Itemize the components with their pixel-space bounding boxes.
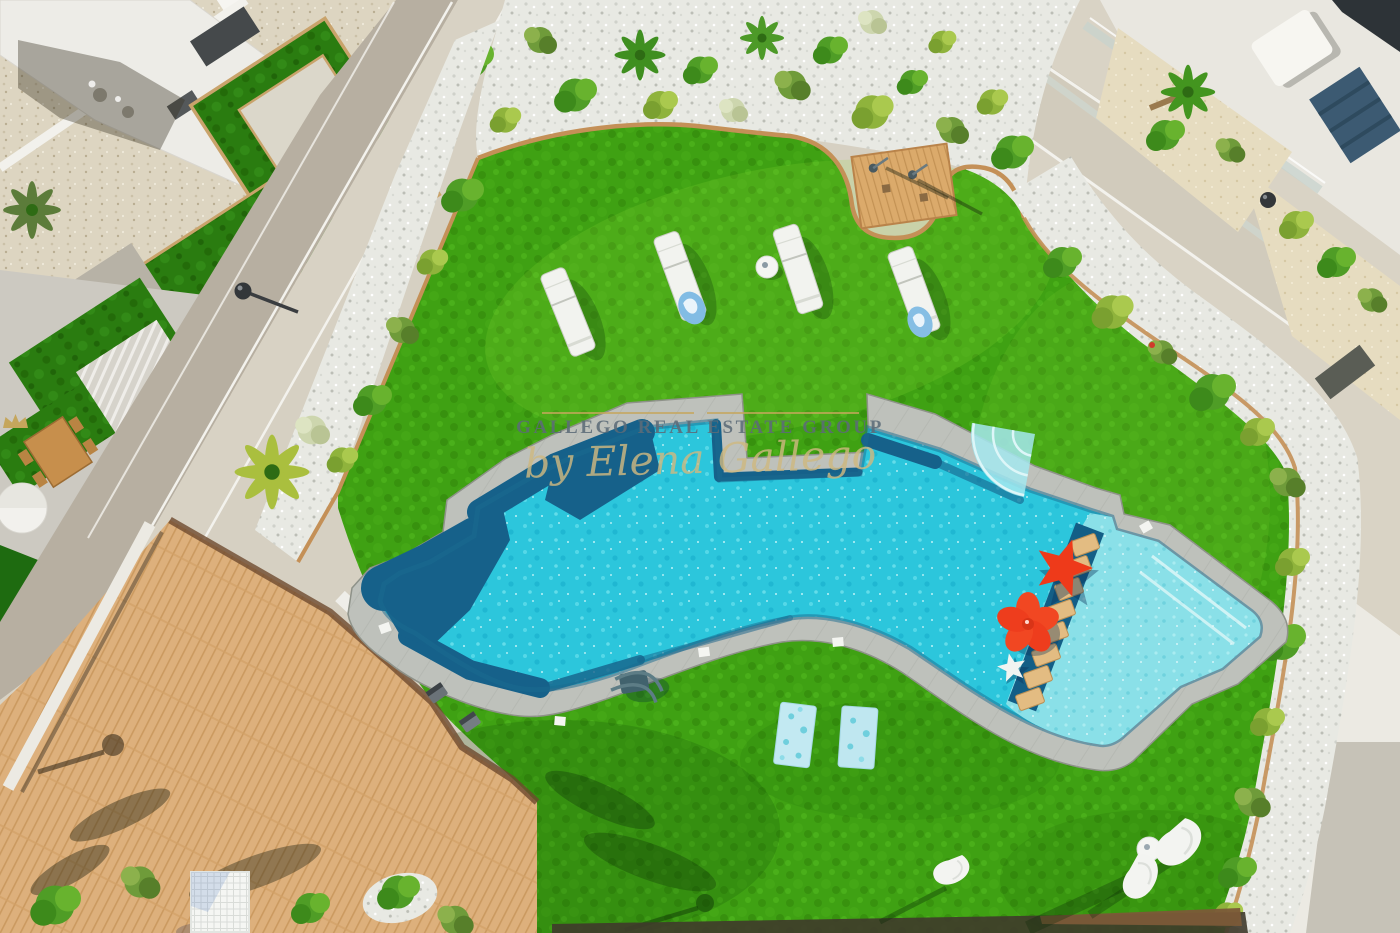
- yellow-palm: [235, 435, 310, 510]
- scene-canvas: [0, 0, 1400, 933]
- lamp-shadow: [102, 734, 124, 756]
- palm-tree: [1161, 65, 1215, 119]
- shower-deck: [851, 144, 956, 229]
- beach-towel: [838, 706, 878, 769]
- parasol: [0, 483, 47, 533]
- lamp-head: [1260, 192, 1276, 208]
- palm-tree: [615, 30, 666, 81]
- aerial-photo: GALLEGO REAL ESTATE GROUP by Elena Galle…: [0, 0, 1400, 933]
- lamp-shadow: [696, 894, 714, 912]
- beach-towel: [773, 702, 816, 768]
- palm-tree: [3, 181, 61, 239]
- lamp-head: [235, 283, 252, 300]
- palm-tree: [740, 16, 784, 60]
